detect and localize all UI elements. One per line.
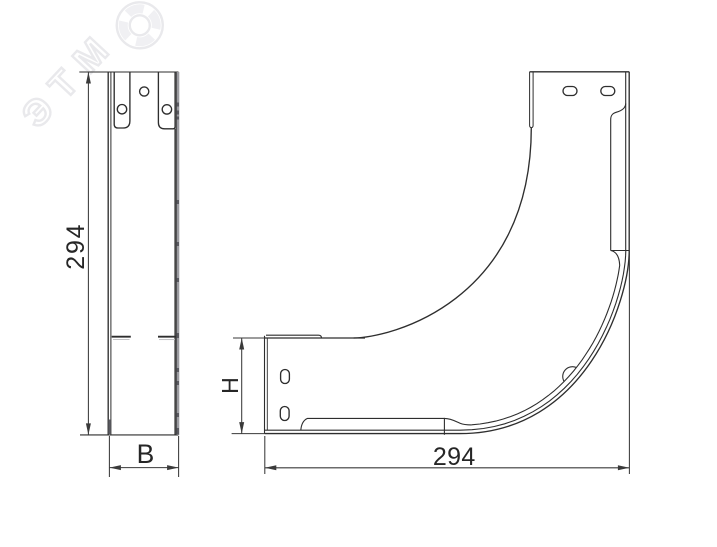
svg-text:H: H <box>217 377 243 394</box>
svg-text:294: 294 <box>62 223 90 270</box>
svg-text:B: B <box>137 439 155 469</box>
svg-text:294: 294 <box>433 443 476 471</box>
